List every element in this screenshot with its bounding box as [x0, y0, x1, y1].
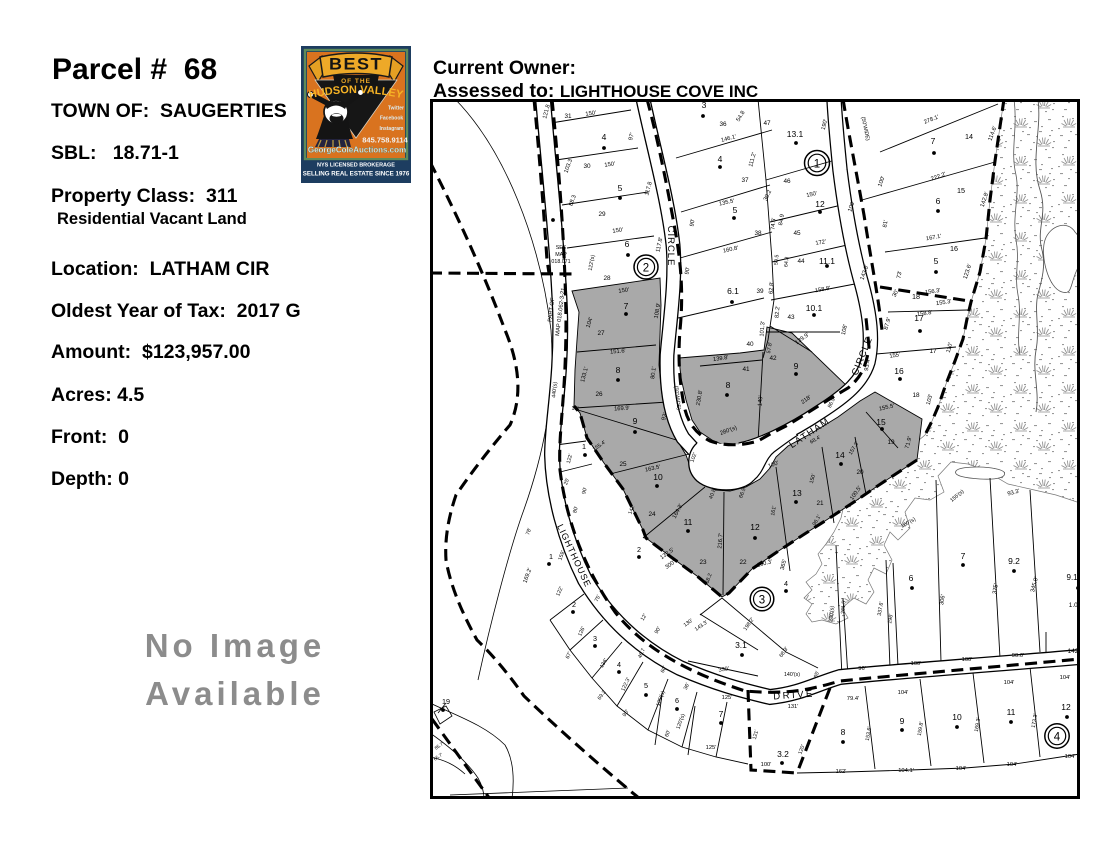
svg-text:3.2: 3.2	[777, 749, 789, 759]
svg-text:155': 155'	[889, 352, 901, 360]
svg-text:13.1: 13.1	[787, 129, 804, 139]
svg-text:27: 27	[597, 330, 605, 337]
svg-text:50.5: 50.5	[774, 254, 781, 265]
svg-text:143.3': 143.3'	[694, 620, 709, 633]
svg-text:47: 47	[763, 120, 771, 127]
svg-text:10: 10	[952, 712, 962, 722]
svg-text:90': 90'	[581, 487, 589, 495]
svg-text:169.3': 169.3'	[974, 717, 982, 732]
svg-text:330': 330'	[718, 666, 730, 674]
svg-text:43: 43	[787, 314, 795, 321]
svg-text:29: 29	[598, 211, 606, 218]
svg-text:87.9': 87.9'	[884, 317, 893, 331]
svg-text:104': 104'	[1060, 675, 1071, 681]
svg-text:7: 7	[961, 551, 966, 561]
svg-text:90': 90'	[689, 219, 696, 227]
svg-text:Facebook: Facebook	[380, 116, 404, 122]
svg-text:375': 375'	[992, 583, 1000, 595]
svg-text:5: 5	[644, 681, 648, 690]
svg-text:103': 103'	[926, 394, 935, 406]
svg-text:22: 22	[739, 559, 747, 566]
svg-text:173.3': 173.3'	[1031, 713, 1039, 728]
svg-text:11: 11	[684, 517, 693, 527]
svg-text:150': 150'	[585, 110, 597, 117]
svg-text:DRIVE: DRIVE	[773, 689, 815, 703]
svg-text:30: 30	[583, 163, 591, 170]
svg-text:104.1': 104.1'	[898, 768, 914, 774]
svg-text:NYS LICENSED BROKERAGE: NYS LICENSED BROKERAGE	[317, 163, 395, 169]
svg-text:31: 31	[564, 113, 572, 120]
svg-text:190': 190'	[821, 119, 830, 131]
svg-text:9.2: 9.2	[1008, 556, 1020, 566]
svg-text:150': 150'	[604, 161, 616, 168]
svg-text:37: 37	[741, 177, 749, 184]
svg-text:45: 45	[793, 230, 801, 237]
svg-text:3.1: 3.1	[735, 640, 747, 650]
svg-text:7: 7	[624, 301, 629, 311]
svg-text:18: 18	[912, 392, 920, 399]
svg-text:153.6': 153.6'	[865, 726, 873, 741]
svg-text:SELLING REAL ESTATE SINCE 1976: SELLING REAL ESTATE SINCE 1976	[303, 171, 410, 178]
svg-text:BEST: BEST	[329, 55, 383, 73]
svg-text:111.2': 111.2'	[748, 152, 758, 168]
svg-text:2: 2	[637, 545, 641, 554]
svg-text:9: 9	[900, 716, 905, 726]
svg-text:3: 3	[702, 100, 707, 110]
svg-text:11.1: 11.1	[819, 256, 835, 266]
svg-text:150': 150'	[612, 227, 624, 234]
svg-text:74.6': 74.6'	[770, 217, 777, 230]
svg-text:12: 12	[1061, 702, 1071, 712]
svg-text:125': 125'	[722, 695, 733, 701]
svg-text:2: 2	[643, 263, 649, 275]
svg-text:5: 5	[733, 205, 738, 215]
svg-text:8: 8	[616, 365, 621, 375]
svg-text:149': 149'	[758, 395, 765, 406]
svg-text:CIRCLE: CIRCLE	[665, 226, 676, 267]
svg-text:7: 7	[719, 709, 724, 719]
svg-text:100': 100'	[911, 661, 922, 667]
svg-text:90': 90'	[684, 267, 691, 275]
svg-text:GeorgeColeAuctions.com: GeorgeColeAuctions.com	[308, 146, 406, 155]
svg-text:88.3: 88.3	[568, 194, 578, 207]
svg-text:142: 142	[1068, 648, 1079, 655]
svg-text:110': 110'	[946, 342, 954, 354]
svg-text:42: 42	[769, 355, 777, 362]
svg-text:261.5': 261.5'	[840, 600, 847, 615]
svg-text:OF THE: OF THE	[341, 78, 371, 85]
svg-text:6: 6	[625, 239, 630, 249]
svg-text:125'(s): 125'(s)	[655, 690, 666, 707]
svg-text:4: 4	[718, 154, 723, 164]
svg-text:158.8': 158.8'	[815, 286, 831, 295]
svg-text:100': 100'	[877, 176, 886, 188]
svg-text:46: 46	[783, 178, 791, 185]
svg-text:24: 24	[648, 511, 656, 518]
svg-text:12: 12	[815, 199, 825, 209]
svg-text:Instagram: Instagram	[380, 126, 404, 132]
svg-text:117.8': 117.8'	[656, 237, 665, 253]
svg-text:125': 125'	[706, 745, 717, 751]
svg-text:100': 100'	[761, 762, 772, 768]
svg-text:69.2: 69.2	[597, 689, 608, 701]
svg-text:97': 97'	[628, 132, 636, 141]
svg-text:25: 25	[619, 461, 627, 468]
svg-text:122'(s): 122'(s)	[588, 254, 597, 271]
svg-text:155'(s): 155'(s)	[949, 489, 965, 504]
svg-text:10.1: 10.1	[806, 303, 823, 313]
svg-text:26: 26	[595, 391, 603, 398]
svg-text:345.8': 345.8'	[1030, 576, 1040, 593]
svg-text:120': 120'	[798, 744, 807, 755]
svg-text:80': 80'	[572, 506, 580, 514]
svg-text:81': 81'	[882, 220, 889, 228]
svg-text:4: 4	[602, 132, 607, 142]
svg-text:6: 6	[675, 696, 679, 705]
svg-text:16: 16	[950, 244, 958, 253]
svg-text:15: 15	[957, 186, 965, 195]
svg-text:122': 122'	[566, 453, 574, 464]
svg-text:79.4': 79.4'	[847, 696, 859, 702]
svg-text:2: 2	[572, 600, 576, 609]
svg-text:14: 14	[835, 450, 845, 460]
svg-text:131': 131'	[788, 704, 799, 710]
svg-text:117.8: 117.8	[644, 181, 653, 196]
svg-text:172': 172'	[815, 239, 827, 247]
svg-text:6: 6	[909, 573, 914, 583]
svg-text:9: 9	[794, 361, 799, 371]
svg-text:3: 3	[593, 634, 597, 643]
svg-text:306': 306'	[939, 594, 947, 606]
svg-text:278.1': 278.1'	[923, 114, 940, 125]
svg-text:8: 8	[841, 727, 846, 737]
svg-text:12: 12	[750, 522, 760, 532]
svg-text:90': 90'	[654, 626, 663, 635]
svg-text:17: 17	[929, 348, 937, 355]
svg-text:104': 104'	[1065, 754, 1076, 760]
svg-text:167.1': 167.1'	[926, 234, 942, 243]
svg-text:196': 196'	[887, 613, 895, 624]
svg-text:21: 21	[816, 500, 824, 507]
svg-text:018.071: 018.071	[551, 259, 570, 265]
svg-text:25': 25'	[563, 477, 571, 486]
svg-text:1: 1	[582, 442, 586, 451]
svg-text:68.3': 68.3'	[778, 646, 789, 659]
svg-text:18: 18	[912, 292, 920, 301]
svg-text:104': 104'	[898, 690, 909, 696]
svg-text:4: 4	[1054, 732, 1061, 744]
svg-text:8: 8	[726, 380, 731, 390]
svg-text:337.6': 337.6'	[877, 601, 885, 616]
svg-text:5: 5	[618, 183, 623, 193]
svg-text:150': 150'	[806, 191, 818, 199]
svg-text:54.8: 54.8	[736, 110, 747, 123]
svg-text:6: 6	[936, 196, 941, 206]
svg-text:9: 9	[633, 416, 638, 426]
svg-text:169.9': 169.9'	[614, 405, 630, 412]
svg-text:130': 130'	[683, 618, 695, 629]
svg-text:1: 1	[549, 552, 553, 561]
svg-text:73': 73'	[896, 271, 903, 279]
svg-text:159.8': 159.8'	[917, 721, 925, 736]
svg-text:82.2': 82.2'	[774, 305, 781, 318]
svg-text:120'(s): 120'(s)	[675, 713, 686, 730]
svg-text:62.8': 62.8'	[768, 281, 775, 294]
svg-text:78': 78'	[525, 527, 533, 536]
svg-text:222.2': 222.2'	[930, 172, 947, 183]
svg-text:17: 17	[914, 313, 924, 323]
svg-text:41: 41	[742, 366, 750, 373]
svg-text:20: 20	[856, 469, 864, 476]
svg-text:9.11: 9.11	[1067, 573, 1080, 582]
svg-text:122': 122'	[555, 586, 565, 597]
svg-text:365': 365'	[780, 559, 789, 571]
svg-text:23: 23	[699, 559, 707, 566]
svg-text:36': 36'	[683, 682, 691, 691]
svg-text:100': 100'	[962, 657, 973, 663]
svg-text:12': 12'	[640, 613, 649, 622]
svg-text:15': 15'	[572, 406, 579, 412]
svg-text:1.04: 1.04	[1069, 602, 1080, 609]
svg-text:140'(s): 140'(s)	[784, 672, 800, 678]
svg-text:(50'WIDE): (50'WIDE)	[860, 116, 871, 141]
svg-text:13: 13	[792, 488, 802, 498]
svg-text:104': 104'	[1007, 762, 1018, 768]
svg-text:4: 4	[784, 579, 788, 588]
svg-text:38: 38	[754, 230, 762, 237]
svg-text:3: 3	[759, 595, 765, 607]
svg-text:6.1: 6.1	[727, 286, 739, 296]
svg-text:7: 7	[931, 136, 936, 146]
svg-text:SEE: SEE	[556, 245, 567, 251]
svg-text:155.3': 155.3'	[936, 299, 952, 307]
svg-text:121': 121'	[752, 729, 760, 740]
svg-text:30.2: 30.2	[763, 189, 773, 202]
svg-text:104': 104'	[956, 766, 967, 772]
svg-text:4: 4	[617, 660, 621, 669]
svg-text:MAP: MAP	[555, 252, 567, 258]
svg-text:845.758.9114: 845.758.9114	[362, 136, 408, 145]
svg-text:123.6': 123.6'	[963, 263, 974, 280]
svg-text:14: 14	[965, 132, 973, 141]
svg-text:Twitter: Twitter	[388, 106, 404, 112]
svg-text:162': 162'	[836, 769, 847, 775]
svg-text:10: 10	[653, 472, 663, 482]
svg-text:39: 39	[756, 288, 764, 295]
svg-text:60': 60'	[664, 729, 672, 738]
svg-text:28: 28	[603, 275, 611, 282]
svg-text:16: 16	[894, 366, 904, 376]
svg-text:64.8: 64.8	[784, 256, 791, 267]
svg-text:36: 36	[719, 121, 727, 128]
svg-text:19: 19	[442, 697, 450, 706]
svg-text:40: 40	[746, 341, 754, 348]
svg-text:108': 108'	[841, 324, 849, 336]
svg-text:103.3': 103.3'	[564, 157, 575, 174]
svg-text:44: 44	[797, 258, 805, 265]
svg-text:159': 159'	[558, 550, 567, 561]
svg-text:15: 15	[876, 417, 886, 427]
svg-text:84.9: 84.9	[778, 214, 786, 226]
svg-text:90.0': 90.0'	[1012, 653, 1024, 659]
svg-text:5: 5	[934, 256, 939, 266]
svg-text:93.3': 93.3'	[1007, 489, 1021, 498]
svg-text:11: 11	[1007, 707, 1016, 717]
svg-text:1: 1	[814, 159, 820, 171]
svg-text:19: 19	[887, 439, 895, 446]
svg-text:96': 96'	[858, 666, 866, 672]
svg-text:104': 104'	[1004, 680, 1015, 686]
svg-text:160.8': 160.8'	[723, 245, 740, 254]
svg-text:169.2': 169.2'	[523, 567, 534, 584]
